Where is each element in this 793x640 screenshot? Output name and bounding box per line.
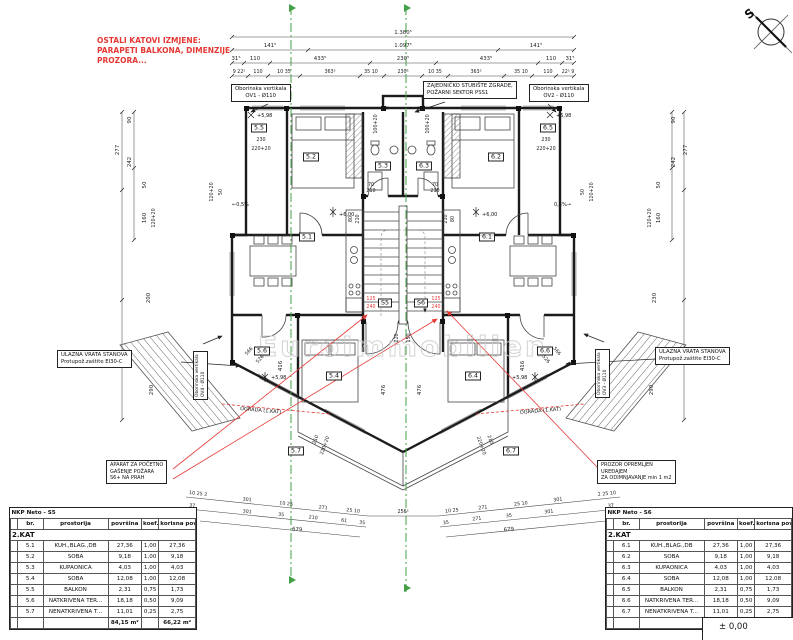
dim-label: 70	[368, 182, 374, 188]
table-cell: 1,00	[738, 541, 755, 552]
dim-label: 150	[406, 333, 412, 342]
table-row: 5.4SOBA12,081,0012,08	[11, 574, 196, 585]
dim-label: 679	[292, 526, 303, 533]
callout-ov3: Oborinska vertikala OV3 - Ø110	[595, 349, 610, 398]
dim-label: 120+20	[151, 208, 157, 227]
callout-text: ULAZNA VRATA STANOVA	[61, 352, 128, 359]
table-cell: 18,18	[704, 596, 738, 607]
table-cell: 1,00	[142, 541, 159, 552]
level-label: +5,98	[556, 113, 571, 119]
table-row: br.prostorijapovršinakoef.korisna povr..…	[607, 519, 792, 530]
revision-note-line: OSTALI KATOVI IZMJENE:	[97, 36, 230, 46]
ground-level-box: ± 0,00	[702, 617, 793, 640]
table-cell	[607, 574, 614, 585]
table-cell: br.	[614, 519, 639, 530]
callout-extinguisher: APARAT ZA POČETNO GAŠENJE POŽARA S6+ NA …	[106, 460, 167, 484]
table-cell: BALKON	[43, 585, 108, 596]
slope-label: ←0,5%	[232, 202, 249, 208]
callout-text: Oborinska vertikala	[235, 86, 287, 93]
dim-label: 210	[430, 188, 439, 194]
dim-label: 50	[580, 189, 586, 195]
dim-label: 416	[278, 360, 284, 371]
table-row: 5.2SOBA9,181,009,18	[11, 552, 196, 563]
area-table: NKP Neto - S6 br.prostorijapovršinakoef.…	[606, 508, 792, 629]
room-label-6-4: 6.4	[465, 372, 481, 381]
room-label-5-3: 5.3	[375, 162, 391, 171]
table-cell: 9,18	[704, 552, 738, 563]
dim-label: 100+20	[425, 114, 431, 133]
table-cell: 5.3	[18, 563, 43, 574]
dim-label-red: 125	[366, 296, 375, 302]
table-cell: 1,00	[738, 563, 755, 574]
dim-label: 61	[341, 518, 348, 525]
table-cell: koef.	[142, 519, 159, 530]
callout-ov2: Oborinska vertikala OV2 - Ø110	[529, 84, 589, 102]
table-cell	[639, 618, 704, 629]
dim-label: 277	[115, 145, 121, 155]
table-cell: 0,25	[142, 607, 159, 618]
table-row: 6.6NATKRIVENA TER...18,180,509,09	[607, 596, 792, 607]
ground-level-value: ± 0,00	[719, 622, 748, 632]
table-cell: KUH.,BLAG.,DB	[639, 541, 704, 552]
table-cell: 0,75	[738, 585, 755, 596]
table-cell	[607, 563, 614, 574]
dim-label: 90	[671, 116, 677, 123]
table-cell: NENATKRIVENA T...	[639, 607, 704, 618]
callout-smoke-window: PROZOR OPREMLJEN UREĐAJEM ZA ODIMNJAVANJ…	[597, 460, 676, 484]
dim-label: 35	[506, 513, 513, 520]
dim-label: 31⁵	[565, 55, 574, 62]
dim-label: 679	[503, 526, 514, 533]
callout-stairwell: ZAJEDNIČKO STUBIŠTE ZGRADE, POŽARNI SEKT…	[423, 81, 517, 99]
unit-label-s5: S5	[378, 299, 392, 308]
table-cell: 6.4	[614, 574, 639, 585]
dim-label: 31⁵	[231, 55, 240, 62]
table-cell: br.	[18, 519, 43, 530]
callout-ov1: Oborinska vertikala OV1 - Ø110	[231, 84, 291, 102]
table-cell: prostorija	[43, 519, 108, 530]
table-cell: 12,08	[108, 574, 142, 585]
callout-text: POŽARNI SEKTOR PSS1	[427, 90, 513, 97]
dim-label: 200	[146, 292, 152, 303]
dim-label: 271	[318, 505, 328, 512]
table-cell: 0,75	[142, 585, 159, 596]
dim-label: 433⁵	[314, 55, 326, 62]
room-label-5-7: 5.7	[288, 447, 304, 456]
callout-text: Protupož.zaštite EI30-C	[659, 356, 726, 363]
callout-text: OV2 - Ø110	[533, 93, 585, 100]
dim-label: 100+20	[373, 114, 379, 133]
table-cell: 5.4	[18, 574, 43, 585]
table-cell: 6.6	[614, 596, 639, 607]
table-title: NKP Neto - S5	[11, 508, 196, 519]
table-cell	[11, 607, 18, 618]
table-cell	[607, 607, 614, 618]
table-cell: prostorija	[639, 519, 704, 530]
dim-label: 141⁵	[530, 42, 542, 49]
table-cell: 2,75	[755, 607, 792, 618]
dim-label: 363⁵	[470, 69, 481, 75]
table-cell: 2,31	[704, 585, 738, 596]
room-label-5-6: 5.6	[254, 347, 270, 356]
dim-label: 363⁵	[324, 69, 335, 75]
callout-text: ZA ODIMNJAVANJE min 1 m2	[601, 475, 672, 482]
table-row: br.prostorijapovršinakoef.korisna povr..…	[11, 519, 196, 530]
table-cell: 12,08	[704, 574, 738, 585]
dim-label: 210	[366, 188, 375, 194]
dim-label: 210	[308, 515, 318, 522]
dim-label: 230	[541, 137, 550, 143]
table-cell: 6.7	[614, 607, 639, 618]
dim-label: 10 25 2	[189, 490, 208, 498]
table-cell: 27,36	[159, 541, 196, 552]
table-cell	[607, 596, 614, 607]
table-cell: 2,31	[108, 585, 142, 596]
table-row: 6.3KUPAONICA4,031,004,03	[607, 563, 792, 574]
dim-label: 50	[142, 181, 148, 188]
dim-label: 210	[355, 214, 361, 223]
dim-label: 80	[450, 216, 456, 222]
compass-north-label: S	[742, 6, 757, 22]
level-label: +5,98	[512, 375, 527, 381]
dim-label: 566	[552, 346, 562, 357]
callout-text: APARAT ZA POČETNO	[110, 462, 163, 469]
callout-text: OV4 - Ø110	[201, 354, 207, 397]
dim-label: 242	[671, 157, 677, 167]
table-cell: 1,73	[159, 585, 196, 596]
table-cell: SOBA	[639, 574, 704, 585]
dim-label: 9 22⁵	[233, 69, 246, 75]
dim-label: 256⁵	[397, 509, 408, 515]
table-cell: 5.5	[18, 585, 43, 596]
callout-text: Protupož.zaštite EI30-C	[61, 359, 128, 366]
room-label-6-2: 6.2	[488, 153, 504, 162]
room-label-5-2: 5.2	[303, 153, 319, 162]
room-label-5-4: 5.4	[326, 372, 342, 381]
table-row: 6.7NENATKRIVENA T...11,010,252,75	[607, 607, 792, 618]
table-cell: SOBA	[639, 552, 704, 563]
pergola-hatch-left	[120, 332, 240, 431]
table-cell	[142, 618, 159, 629]
north-compass: S	[742, 6, 792, 53]
table-row: 5.3KUPAONICA4,031,004,03	[11, 563, 196, 574]
terrace-decks	[298, 397, 508, 490]
callout-text: Oborinska vertikala	[533, 86, 585, 93]
floor-plan-canvas: .w{stroke:#1b1b1b;stroke-width:2.4;fill:…	[0, 0, 793, 640]
table-row: 5.1KUH.,BLAG.,DB27,361,0027,36	[11, 541, 196, 552]
table-cell: 12,08	[755, 574, 792, 585]
dim-label: 416	[520, 360, 526, 371]
watermark-text: EuroImmobilien	[258, 330, 548, 363]
dim-label: 476	[417, 384, 423, 395]
dim-label: 301	[544, 509, 554, 516]
railing-note: OGRADA (1.KAT)	[520, 406, 562, 416]
area-table-s6: NKP Neto - S6 br.prostorijapovršinakoef.…	[605, 507, 793, 630]
table-cell: 18,18	[108, 596, 142, 607]
table-cell: 1,00	[142, 552, 159, 563]
table-cell: 4,03	[108, 563, 142, 574]
callout-text: ZAJEDNIČKO STUBIŠTE ZGRADE,	[427, 83, 513, 90]
table-row: 6.4SOBA12,081,0012,08	[607, 574, 792, 585]
table-cell	[607, 552, 614, 563]
level-label: +6,00	[482, 212, 497, 218]
table-cell: 1,00	[142, 563, 159, 574]
table-cell: 6.2	[614, 552, 639, 563]
level-label: +5,98	[271, 375, 286, 381]
table-cell: 11,01	[704, 607, 738, 618]
table-row: 6.1KUH.,BLAG.,DB27,361,0027,36	[607, 541, 792, 552]
table-cell	[607, 519, 614, 530]
room-label-6-7: 6.7	[503, 447, 519, 456]
table-row: 6.2SOBA9,181,009,18	[607, 552, 792, 563]
table-row: 6.5BALKON2,310,751,73	[607, 585, 792, 596]
table-cell: 2,75	[159, 607, 196, 618]
revision-note-line: PARAPETI BALKONA, DIMENZIJE	[97, 46, 230, 56]
table-cell: 27,36	[108, 541, 142, 552]
table-row: 5.7NENATKRIVENA T...11,010,252,75	[11, 607, 196, 618]
table-cell	[11, 585, 18, 596]
dim-label: 1.097⁵	[394, 42, 412, 49]
dim-label: 230⁵	[397, 55, 409, 62]
table-cell: površina	[108, 519, 142, 530]
dim-label: 141⁵	[264, 42, 276, 49]
table-cell: 9,09	[755, 596, 792, 607]
table-cell: 4,03	[159, 563, 196, 574]
dim-label: 120+20	[589, 182, 595, 201]
dim-label: 220+20	[475, 436, 487, 456]
table-cell: 9,18	[755, 552, 792, 563]
table-cell	[11, 596, 18, 607]
table-cell: korisna povr...	[159, 519, 196, 530]
dim-label: 210	[312, 434, 321, 445]
callout-text: Oborinska vertikala	[597, 352, 603, 395]
dim-label: 210	[486, 434, 495, 445]
room-label-6-5: 6.5	[540, 124, 556, 133]
dim-label: 120+20	[647, 208, 653, 227]
revision-note: OSTALI KATOVI IZMJENE: PARAPETI BALKONA,…	[97, 36, 230, 66]
dim-label: 25 10	[346, 507, 360, 514]
dim-label: 476	[381, 384, 387, 395]
callout-text: ULAZNA VRATA STANOVA	[659, 349, 726, 356]
table-cell: korisna povr...	[755, 519, 792, 530]
dim-label: 110	[250, 56, 261, 62]
table-cell	[18, 618, 43, 629]
table-cell: BALKON	[639, 585, 704, 596]
table-cell: 12,08	[159, 574, 196, 585]
dim-label-red: 125	[431, 296, 440, 302]
dim-label: 120+20	[209, 182, 215, 201]
callout-text: OV1 - Ø110	[235, 93, 287, 100]
table-cell: 9,18	[159, 552, 196, 563]
room-label-5-5: 5.5	[251, 124, 267, 133]
table-cell: 6.3	[614, 563, 639, 574]
table-cell: NENATKRIVENA T...	[43, 607, 108, 618]
dim-label: 22⁵ 9	[562, 69, 575, 75]
table-cell: 27,36	[755, 541, 792, 552]
table-cell: 0,50	[142, 596, 159, 607]
area-table: NKP Neto - S5 br.prostorijapovršinakoef.…	[10, 508, 196, 629]
dim-label-red: 240	[431, 304, 440, 310]
table-cell: SOBA	[43, 574, 108, 585]
dim-label: 271	[478, 505, 488, 512]
table-cell: 11,01	[108, 607, 142, 618]
dim-label: 230⁵	[397, 69, 408, 75]
dim-label: 277	[683, 145, 689, 155]
dim-label: 10 35	[428, 69, 442, 75]
dim-label: 110	[253, 69, 262, 75]
callout-ov4: Oborinska vertikala OV4 - Ø110	[193, 351, 208, 400]
table-cell: SOBA	[43, 552, 108, 563]
dim-label: 220	[394, 333, 400, 342]
dim-label: 566	[244, 346, 254, 357]
table-cell: koef.	[738, 519, 755, 530]
table-cell	[11, 574, 18, 585]
floor-label: 2.KAT	[607, 530, 792, 541]
table-cell	[607, 618, 614, 629]
table-cell: 5.6	[18, 596, 43, 607]
area-table-s5: NKP Neto - S5 br.prostorijapovršinakoef.…	[9, 507, 197, 630]
dim-label: 35	[359, 520, 366, 527]
table-cell	[607, 585, 614, 596]
callout-text: Oborinska vertikala	[195, 354, 201, 397]
dim-label: 220+20	[536, 146, 555, 152]
table-cell	[607, 541, 614, 552]
table-cell	[11, 563, 18, 574]
room-label-6-6: 6.6	[537, 347, 553, 356]
level-label: +5,98	[257, 113, 272, 119]
table-cell: 0,25	[738, 607, 755, 618]
dim-label: 242	[127, 157, 133, 167]
dim-label: 10 25	[445, 507, 459, 514]
dim-label: 50	[218, 189, 224, 195]
table-cell: 84,15 m²	[108, 618, 142, 629]
dim-label: 220+20	[251, 146, 270, 152]
table-cell: 5.7	[18, 607, 43, 618]
level-label: +6,00	[339, 212, 354, 218]
table-cell: KUPAONICA	[639, 563, 704, 574]
callout-entry-left: ULAZNA VRATA STANOVA Protupož.zaštite EI…	[57, 350, 132, 368]
room-label-6-3: 6.3	[416, 162, 432, 171]
dim-label-red: 240	[366, 304, 375, 310]
dim-label: 110	[543, 69, 552, 75]
table-cell: 4,03	[755, 563, 792, 574]
dim-label: 50	[656, 181, 662, 188]
table-cell: 66,22 m²	[159, 618, 196, 629]
table-cell	[11, 552, 18, 563]
table-cell: 0,50	[738, 596, 755, 607]
table-cell: 9,18	[108, 552, 142, 563]
dim-label: 433⁵	[480, 55, 492, 62]
dim-label: 35 10	[364, 69, 378, 75]
dim-label: 35	[278, 512, 285, 519]
dim-label: 35 10	[514, 69, 528, 75]
dim-label: 10 35	[277, 69, 291, 75]
table-cell: KUH.,BLAG.,DB	[43, 541, 108, 552]
table-cell: 27,36	[704, 541, 738, 552]
table-cell: 1,00	[738, 552, 755, 563]
table-cell: 5.2	[18, 552, 43, 563]
table-cell: 1,00	[738, 574, 755, 585]
table-cell: 5.1	[18, 541, 43, 552]
table-cell: 1,73	[755, 585, 792, 596]
table-cell: 4,03	[704, 563, 738, 574]
table-cell: 1,00	[142, 574, 159, 585]
dim-label: 301	[242, 497, 252, 504]
dim-label: 526	[541, 354, 551, 365]
table-title: NKP Neto - S6	[607, 508, 792, 519]
table-cell: NATKRIVENA TER...	[639, 596, 704, 607]
table-cell	[11, 541, 18, 552]
table-cell	[11, 618, 18, 629]
dim-label: 70	[432, 182, 438, 188]
dim-label: 2 25 10	[597, 490, 616, 498]
room-label-6-1: 6.1	[479, 233, 495, 242]
table-row: 84,15 m²66,22 m²	[11, 618, 196, 629]
dim-label: 210	[443, 214, 449, 223]
dim-label: 301	[242, 509, 252, 516]
dim-label: 110	[546, 56, 557, 62]
dim-label: 90	[127, 116, 133, 123]
room-label-5-1: 5.1	[299, 233, 315, 242]
dim-label: 271	[472, 516, 482, 523]
callout-text: OV3 - Ø110	[603, 352, 609, 395]
table-cell: 6.5	[614, 585, 639, 596]
dim-label: 301	[553, 497, 563, 504]
table-row: 5.5BALKON2,310,751,73	[11, 585, 196, 596]
floor-label: 2.KAT	[11, 530, 196, 541]
table-cell: KUPAONICA	[43, 563, 108, 574]
slope-label: 0,5%→	[554, 202, 571, 208]
unit-label-s6: S6	[414, 299, 428, 308]
dim-label: 160	[142, 212, 148, 223]
table-cell: 9,09	[159, 596, 196, 607]
table-cell: 6.1	[614, 541, 639, 552]
table-row: 5.6NATKRIVENA TER...18,180,509,09	[11, 596, 196, 607]
railing-note: OGRADA (1.KAT)	[240, 406, 282, 416]
table-cell	[11, 519, 18, 530]
callout-text: S6+ NA PRAH	[110, 475, 163, 482]
table-cell: površina	[704, 519, 738, 530]
table-cell: NATKRIVENA TER...	[43, 596, 108, 607]
table-cell	[43, 618, 108, 629]
dim-label: 230	[256, 137, 265, 143]
dim-label: 220+20	[319, 436, 331, 456]
callout-entry-right: ULAZNA VRATA STANOVA Protupož.zaštite EI…	[655, 347, 730, 365]
dim-label: 230	[652, 292, 658, 303]
revision-note-line: PROZORA...	[97, 56, 230, 66]
dim-label: 160	[656, 212, 662, 223]
dim-label: 290	[149, 384, 155, 395]
dim-label: 290	[649, 384, 655, 395]
table-cell	[614, 618, 639, 629]
dim-label: 35	[443, 520, 450, 527]
dim-label: 1.380⁵	[394, 29, 412, 36]
